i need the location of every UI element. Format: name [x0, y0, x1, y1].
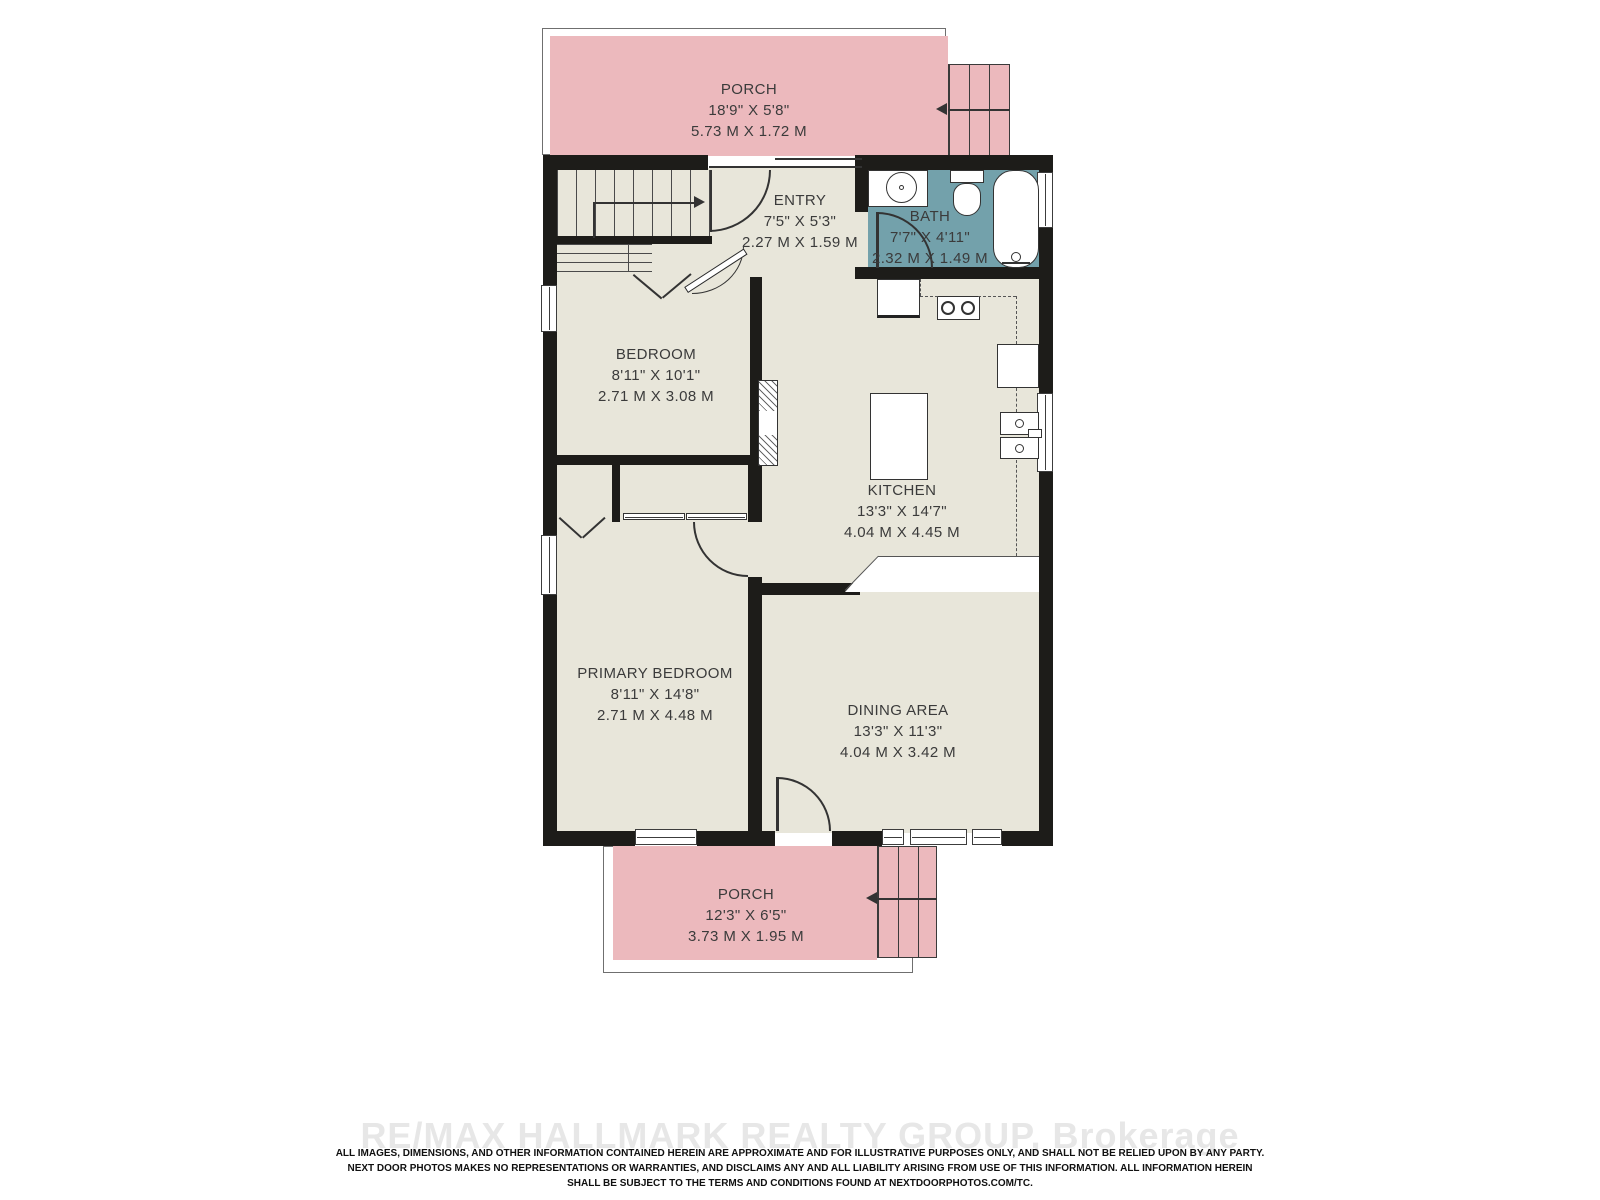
upper-cabinet-dashed-line: [920, 296, 938, 297]
wall-bedroom-bottom: [543, 455, 760, 465]
staircase-direction-line: [593, 202, 595, 238]
upper-cabinet-dashed-line: [1016, 388, 1017, 412]
floor-plan: PORCH 18'9" X 5'8" 5.73 M X 1.72 M ENTRY…: [0, 0, 1600, 1200]
chimney: [758, 380, 778, 466]
chimney-hatch: [759, 435, 777, 465]
window-mullion: [1045, 395, 1046, 470]
wall-bottom-1: [543, 831, 635, 846]
room-name: PORCH: [691, 79, 807, 100]
upper-cabinet-dashed-line: [1016, 460, 1017, 556]
room-name: ENTRY: [742, 190, 858, 211]
staircase-landing-divider: [628, 244, 629, 272]
room-label-bedroom: BEDROOM 8'11" X 10'1" 2.71 M X 3.08 M: [598, 344, 714, 407]
disclaimer-line: NEXT DOOR PHOTOS MAKES NO REPRESENTATION…: [0, 1161, 1600, 1176]
wall-kitchen-dining: [748, 583, 860, 595]
entry-sidelight: [775, 158, 862, 160]
room-dims-imperial: 7'7" X 4'11": [872, 227, 988, 248]
kitchen-island: [870, 393, 928, 480]
sink-faucet: [1028, 429, 1042, 438]
stair-direction-arrow-icon: [694, 196, 705, 208]
wall-bottom-2: [697, 831, 775, 846]
sink-drain-icon: [899, 185, 904, 190]
toilet-tank: [950, 170, 984, 183]
room-dims-imperial: 7'5" X 5'3": [742, 211, 858, 232]
window-mullion: [637, 837, 695, 838]
room-name: PORCH: [688, 884, 804, 905]
wall-stair-divider: [543, 236, 712, 244]
chimney-hatch: [759, 381, 777, 411]
tub-faucet-bar: [1002, 262, 1030, 264]
wall-left-2: [543, 332, 557, 535]
room-dims-metric: 5.73 M X 1.72 M: [691, 121, 807, 142]
window-mullion: [1045, 174, 1046, 226]
room-label-porch-bottom: PORCH 12'3" X 6'5" 3.73 M X 1.95 M: [688, 884, 804, 947]
room-name: DINING AREA: [840, 700, 956, 721]
window-dining-bottom-1: [882, 829, 904, 845]
wall-primary-dining: [748, 577, 762, 831]
wall-right-1: [1039, 155, 1053, 172]
room-label-porch-top: PORCH 18'9" X 5'8" 5.73 M X 1.72 M: [691, 79, 807, 142]
sink-drain-icon: [1015, 444, 1024, 453]
room-label-bath: BATH 7'7" X 4'11" 2.32 M X 1.49 M: [872, 206, 988, 269]
kitchen-counter-right: [997, 344, 1039, 388]
wall-top-left: [543, 155, 708, 170]
window-mullion: [884, 837, 902, 838]
room-label-dining: DINING AREA 13'3" X 11'3" 4.04 M X 3.42 …: [840, 700, 956, 763]
tub-faucet-icon: [1011, 252, 1021, 262]
wall-right-3: [1039, 472, 1053, 831]
room-name: BEDROOM: [598, 344, 714, 365]
room-label-primary-bedroom: PRIMARY BEDROOM 8'11" X 14'8" 2.71 M X 4…: [577, 663, 732, 726]
wall-closet-divider: [612, 465, 620, 522]
wall-left-3: [543, 595, 557, 831]
sliding-door-closet-1: [623, 513, 685, 520]
wall-bottom-4: [1002, 831, 1053, 846]
kitchen-counter-bottom: [845, 556, 1039, 592]
room-label-kitchen: KITCHEN 13'3" X 14'7" 4.04 M X 4.45 M: [844, 480, 960, 543]
room-dims-metric: 2.71 M X 3.08 M: [598, 386, 714, 407]
window-bedroom-left: [541, 285, 557, 332]
upper-cabinet-dashed-line: [920, 279, 921, 296]
room-dims-imperial: 8'11" X 14'8": [577, 684, 732, 705]
window-mullion: [549, 537, 550, 593]
upper-cabinet-dashed-line: [1016, 296, 1017, 344]
sink-drain-icon: [1015, 419, 1024, 428]
room-name: PRIMARY BEDROOM: [577, 663, 732, 684]
porch-bottom-stairs: [877, 846, 937, 958]
room-dims-imperial: 13'3" X 11'3": [840, 721, 956, 742]
room-label-entry: ENTRY 7'5" X 5'3" 2.27 M X 1.59 M: [742, 190, 858, 253]
staircase-landing: [557, 244, 652, 272]
slider-track: [625, 517, 683, 518]
room-dims-metric: 2.32 M X 1.49 M: [872, 248, 988, 269]
room-name: KITCHEN: [844, 480, 960, 501]
upper-cabinet-dashed-line: [978, 296, 1016, 297]
disclaimer: ALL IMAGES, DIMENSIONS, AND OTHER INFORM…: [0, 1146, 1600, 1191]
room-dims-metric: 4.04 M X 3.42 M: [840, 742, 956, 763]
stair-direction-arrow-icon: [866, 892, 877, 904]
room-dims-imperial: 18'9" X 5'8": [691, 100, 807, 121]
room-dims-metric: 3.73 M X 1.95 M: [688, 926, 804, 947]
porch-bottom-stairs-direction-line: [877, 898, 937, 900]
stove-burner-icon: [961, 301, 975, 315]
window-mullion: [549, 287, 550, 330]
window-dining-bottom-2: [910, 829, 967, 845]
wall-bottom-3: [832, 831, 882, 846]
wall-right-2: [1039, 228, 1053, 393]
window-dining-bottom-3: [972, 829, 1002, 845]
room-dims-imperial: 8'11" X 10'1": [598, 365, 714, 386]
counter-edge: [878, 556, 1039, 557]
stove-burner-icon: [941, 301, 955, 315]
entry-door-threshold: [709, 166, 862, 168]
sliding-door-closet-2: [686, 513, 747, 520]
window-primary-left: [541, 535, 557, 595]
window-mullion: [974, 837, 1000, 838]
room-dims-imperial: 13'3" X 14'7": [844, 501, 960, 522]
wall-left-1: [543, 155, 557, 285]
wall-top-right: [862, 155, 1053, 170]
kitchen-fridge: [877, 279, 920, 318]
room-dims-metric: 4.04 M X 4.45 M: [844, 522, 960, 543]
room-name: BATH: [872, 206, 988, 227]
wall-closet-kitchen: [748, 465, 762, 522]
room-dims-imperial: 12'3" X 6'5": [688, 905, 804, 926]
door-leaf-dining: [776, 777, 779, 831]
slider-track: [688, 517, 745, 518]
window-bath-right: [1037, 172, 1053, 228]
room-dims-metric: 2.71 M X 4.48 M: [577, 705, 732, 726]
window-primary-bottom: [635, 829, 697, 845]
porch-top-stairs-direction-line: [948, 109, 1010, 111]
staircase-direction-line: [593, 202, 698, 204]
room-dims-metric: 2.27 M X 1.59 M: [742, 232, 858, 253]
disclaimer-line: SHALL BE SUBJECT TO THE TERMS AND CONDIT…: [0, 1176, 1600, 1191]
window-mullion: [912, 837, 965, 838]
stair-direction-arrow-icon: [936, 103, 947, 115]
disclaimer-line: ALL IMAGES, DIMENSIONS, AND OTHER INFORM…: [0, 1146, 1600, 1161]
